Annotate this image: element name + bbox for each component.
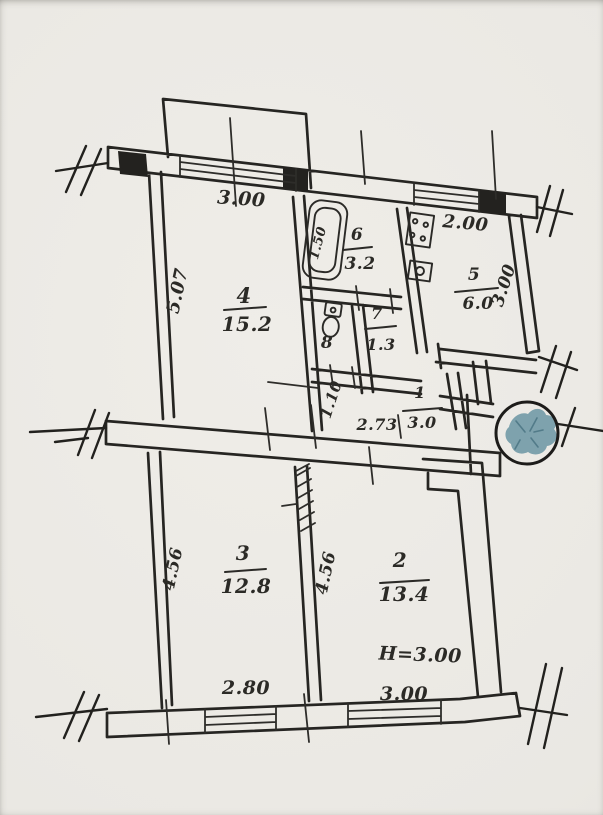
room3-fraction-bar	[225, 569, 266, 572]
dim-hallway-depth: 1.10	[317, 378, 346, 420]
scanned-floor-plan-page: 3.00 5.07 1.50 2.00 3.00 2.73 1.10 4.56 …	[0, 0, 603, 815]
room3-number: 3	[236, 541, 250, 565]
room2-number: 2	[392, 548, 407, 572]
room6-area: 3.2	[344, 254, 375, 274]
room3-area: 12.8	[221, 574, 272, 598]
room6-fraction-bar	[343, 247, 372, 250]
room5-area: 6.0	[462, 294, 493, 314]
stamp-blob	[505, 409, 556, 455]
walls	[106, 99, 539, 737]
room5-number: 5	[468, 265, 480, 285]
room6-number: 6	[351, 225, 363, 245]
dim-hallway-width: 2.73	[356, 415, 398, 434]
sink-icon	[408, 261, 432, 282]
dim-room2-bottom: 3.00	[380, 683, 428, 705]
room4-number: 4	[236, 283, 251, 308]
room7-fraction-bar	[365, 326, 396, 329]
room7-number: 7	[371, 304, 383, 323]
room1-area: 3.0	[407, 413, 436, 432]
room2-area: 13.4	[379, 582, 430, 606]
dim-room3-bottom: 2.80	[221, 677, 270, 699]
note-ceiling-height: Н=3.00	[377, 643, 462, 668]
floor-plan: 3.00 5.07 1.50 2.00 3.00 2.73 1.10 4.56 …	[0, 0, 603, 815]
room8-number: 8	[320, 333, 333, 353]
room7-area: 1.3	[366, 335, 395, 354]
room1-number: 1	[414, 383, 426, 402]
dim-room2-mid: 4.56	[312, 550, 341, 597]
room1-fraction-bar	[403, 408, 442, 411]
dim-bathtub: 1.50	[307, 225, 330, 261]
dim-room4-top: 3.00	[217, 186, 267, 211]
outer-and-inner-walls	[106, 99, 539, 737]
stamp-icon	[496, 402, 558, 464]
labels: 3.00 5.07 1.50 2.00 3.00 2.73 1.10 4.56 …	[159, 186, 521, 705]
room4-area: 15.2	[222, 312, 273, 336]
dim-kitchen-top: 2.00	[441, 211, 489, 236]
dim-room3-left: 4.56	[159, 546, 188, 593]
